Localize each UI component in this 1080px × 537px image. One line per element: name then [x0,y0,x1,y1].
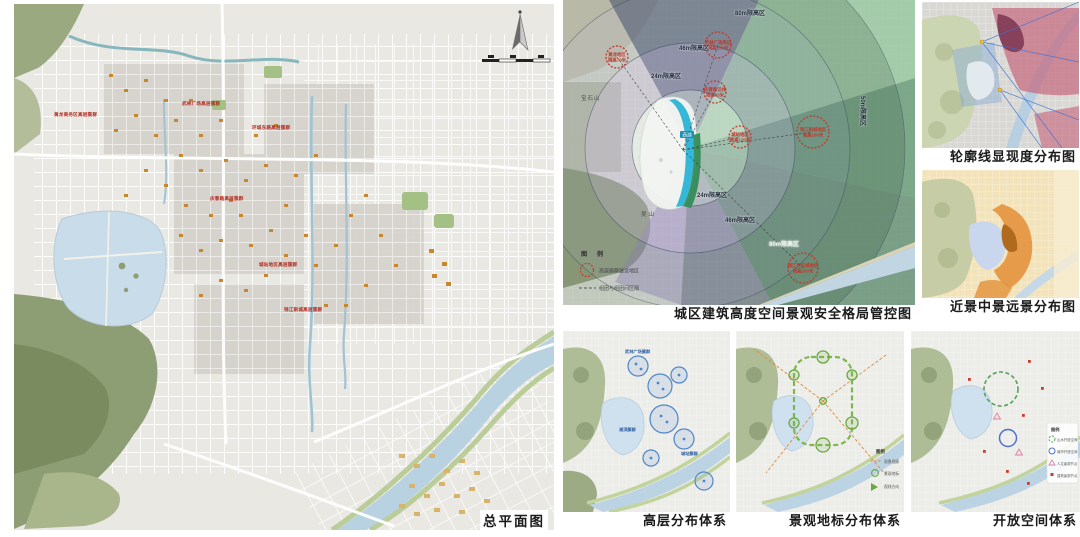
svg-text:观景视廊: 观景视廊 [884,459,899,464]
svg-text:限高120米: 限高120米 [730,137,751,144]
svg-text:图例: 图例 [876,448,885,455]
svg-text:西湖: 西湖 [682,132,692,139]
svg-text:景观地标: 景观地标 [884,471,899,476]
svg-text:高层簇群建设地区: 高层簇群建设地区 [599,268,639,275]
openspace-map: 图例 山水开放空间 城市开放空间 人文景观节点 建筑景观节点 [911,331,1080,512]
svg-text:24m限高区: 24m限高区 [697,191,727,199]
master-plan-panel: 黄龙商务区高层簇群 武林广场高层簇群 环城东路高层簇群 庆春路高层簇群 城站地区… [14,4,554,532]
west-lake [54,211,166,326]
legend-built-icon [1051,473,1054,476]
control-map-panel: 黄龙地区限高70米 武林广场周边限高100米 庆春路沿线限高60米 城站地区限高… [563,0,915,324]
svg-text:限高100米: 限高100米 [708,45,729,52]
caption-outline-map: 轮廓线显现度分布图 [922,148,1079,165]
outline-map-panel: 轮廓线显现度分布图 [922,2,1079,167]
svg-text:武林广场簇群: 武林广场簇群 [625,348,651,355]
svg-text:80m限高区: 80m限高区 [769,240,799,248]
openspace-legend: 图例 山水开放空间 城市开放空间 人文景观节点 建筑景观节点 [1047,423,1078,483]
cluster-annotation: 黄龙商务区高层簇群 [54,112,97,118]
svg-text:图 例: 图 例 [581,250,607,258]
west-lake-core [640,97,701,210]
viewpoint-dot [980,40,984,44]
far-view-band [1054,170,1079,298]
caption-master-plan: 总平面图 [480,510,548,530]
svg-text:湖滨簇群: 湖滨簇群 [619,426,637,433]
svg-text:吴山: 吴山 [641,210,656,218]
caption-control-map: 城区建筑高度空间景观安全格局管控图 [563,305,915,322]
caption-range-map: 近景中景远景分布图 [922,298,1079,315]
landmark-map-panel: 图例 观景视廊 景观地标 视线方向 景观地标分布体系 [736,331,904,531]
svg-text:图例: 图例 [1051,426,1059,433]
svg-text:视线方向: 视线方向 [884,484,899,489]
caption-highrise-map: 高层分布体系 [563,512,730,529]
control-map: 黄龙地区限高70米 武林广场周边限高100米 庆春路沿线限高60米 城站地区限高… [563,0,915,305]
svg-text:城市开放空间: 城市开放空间 [1057,449,1078,454]
highrise-map: 武林广场簇群 湖滨簇群 城站簇群 [563,331,730,512]
range-map [922,170,1079,298]
svg-text:组团与组团间区隔: 组团与组团间区隔 [599,285,639,292]
outline-map [922,2,1079,148]
cluster-annotation: 武林广场高层簇群 [182,101,220,107]
range-map-panel: 近景中景远景分布图 [922,170,1079,318]
highrise-map-panel: 武林广场簇群 湖滨簇群 城站簇群 高层分布体系 [563,331,730,531]
svg-text:限高60米: 限高60米 [706,92,725,99]
cluster-annotation: 庆春路高层簇群 [210,196,244,202]
svg-text:46m限高区: 46m限高区 [679,44,709,52]
height-rings [563,0,905,305]
viewpoint-dot [998,88,1002,92]
svg-text:限高180米: 限高180米 [803,132,824,139]
svg-text:宝石山: 宝石山 [581,94,601,102]
svg-text:限高70米: 限高70米 [608,57,627,64]
svg-text:50m限高区: 50m限高区 [859,96,867,126]
cluster-annotation: 钱江新城高层簇群 [284,307,322,313]
landmark-map: 图例 观景视廊 景观地标 视线方向 [736,331,904,512]
svg-text:限高250米: 限高250米 [793,268,814,275]
caption-landmark-map: 景观地标分布体系 [736,512,904,529]
svg-text:人文景观节点: 人文景观节点 [1057,461,1078,466]
svg-text:山水开放空间: 山水开放空间 [1057,437,1078,442]
svg-text:24m限高区: 24m限高区 [651,72,681,80]
svg-text:80m限高区: 80m限高区 [735,9,765,17]
cluster-annotation: 城站地区高层簇群 [259,262,297,268]
caption-openspace-map: 开放空间体系 [911,512,1080,529]
planning-poster: 黄龙商务区高层簇群 武林广场高层簇群 环城东路高层簇群 庆春路高层簇群 城站地区… [0,0,1080,537]
svg-text:建筑景观节点: 建筑景观节点 [1057,473,1078,478]
svg-text:城站簇群: 城站簇群 [681,450,699,457]
openspace-map-panel: 图例 山水开放空间 城市开放空间 人文景观节点 建筑景观节点 开放空间体系 [911,331,1080,531]
svg-text:46m限高区: 46m限高区 [725,216,755,224]
cluster-annotation: 环城东路高层簇群 [252,125,290,131]
